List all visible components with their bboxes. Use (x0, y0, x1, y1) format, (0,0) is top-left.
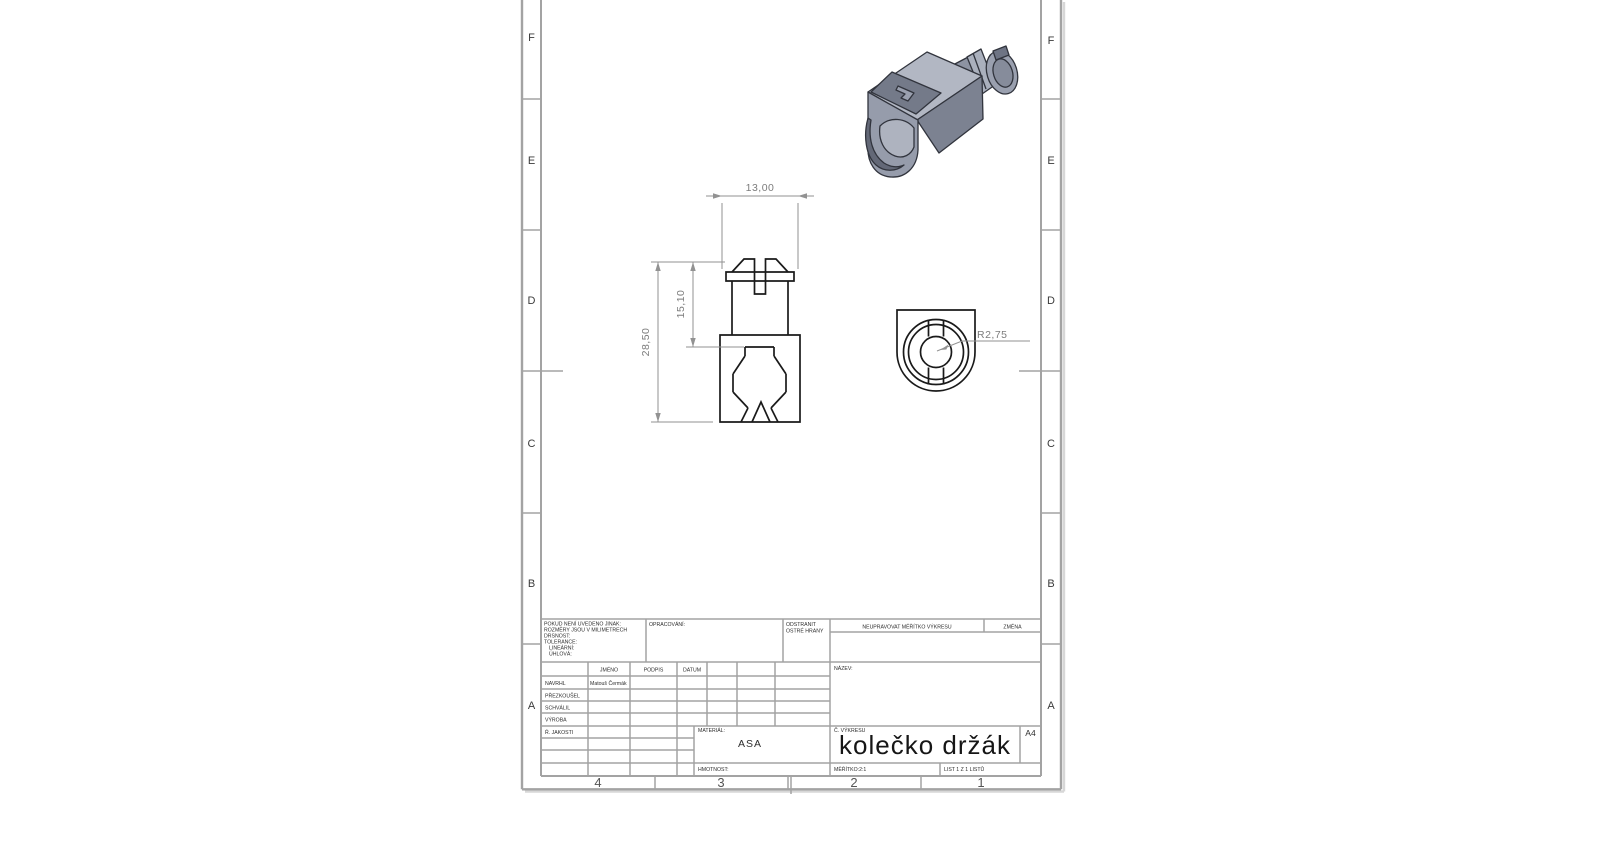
inner-ring-circle (909, 325, 964, 380)
zone-letter: F (1048, 35, 1055, 47)
front-view-prongs-slot (732, 259, 788, 294)
deburr-note: OSTRÉ HRANY (786, 628, 824, 635)
zone-number: 1 (977, 775, 984, 790)
slot-lines (929, 320, 944, 385)
title-label: NÁZEV: (834, 665, 853, 672)
front-view (720, 259, 800, 422)
col-name-header: JMÉNO (600, 667, 618, 674)
zone-letter: D (528, 295, 536, 307)
do-not-scale-note: NEUPRAVOVAT MĚŘÍTKO VÝKRESU (862, 623, 952, 631)
bore-circle (921, 337, 952, 368)
material-label: MATERIÁL: (698, 727, 725, 734)
front-view-cylinder-sides (732, 281, 788, 335)
dim-height-total-text: 28,50 (640, 328, 652, 357)
front-view-snap-cavity (733, 347, 786, 422)
scale-text: MĚŘÍTKO:2:1 (834, 765, 866, 773)
paper-size: A4 (1025, 728, 1036, 738)
dim-width-text: 13,00 (746, 182, 775, 194)
revision-label: ZMĚNA (1003, 623, 1022, 631)
material-value: ASA (738, 738, 762, 750)
outer-ring-circle (904, 320, 969, 385)
drawing-page: F E D C B A F E D C B A 4 3 2 1 13,00 28… (0, 0, 1600, 841)
zone-letter: E (1047, 155, 1054, 167)
drawing-sheet-svg: F E D C B A F E D C B A 4 3 2 1 13,00 28… (0, 0, 1600, 841)
dim-height-total-lines (651, 262, 725, 422)
zone-letter: F (528, 32, 535, 44)
deburr-note: ODSTRANIT (786, 622, 817, 628)
row-quality-label: Ř. JAKOSTI (545, 728, 573, 736)
section-view: R2,75 (897, 310, 1030, 391)
drawn-by-name: Matouš Čermák (590, 680, 627, 687)
col-date-header: DATUM (683, 668, 701, 674)
front-view-block-outline (720, 335, 800, 422)
zone-letter: B (528, 578, 535, 590)
sheet-count-text: LIST 1 Z 1 LISTŮ (944, 766, 985, 773)
general-note-line: ROZMĚRY JSOU V MILIMETRECH (544, 626, 627, 634)
weight-label: HMOTNOST: (698, 767, 729, 773)
dim-width-lines (706, 196, 814, 269)
zone-letter: C (528, 438, 536, 450)
zone-number: 2 (850, 775, 857, 790)
zone-letter: D (1047, 295, 1055, 307)
zone-letter: A (1047, 700, 1055, 712)
general-note-line: ÚHLOVÁ: (549, 651, 572, 658)
iso-view (866, 46, 1023, 177)
zone-number: 3 (717, 775, 724, 790)
dim-radius-text: R2,75 (977, 329, 1008, 341)
zone-letter: E (528, 155, 535, 167)
zone-letter: A (528, 700, 536, 712)
drawing-title: kolečko držák (839, 730, 1011, 760)
row-approved-label: SCHVÁLIL (545, 705, 570, 712)
row-production-label: VÝROBA (545, 717, 567, 724)
row-drawn-label: NAVRHL (545, 681, 566, 687)
machining-label: OPRACOVÁNÍ: (649, 621, 685, 628)
front-view-flange (726, 272, 794, 281)
dim-height-upper-text: 15,10 (675, 290, 687, 319)
zone-number: 4 (594, 775, 601, 790)
row-checked-label: PŘEZKOUŠEL (545, 692, 580, 700)
zone-letter: C (1047, 438, 1055, 450)
col-signature-header: PODPIS (644, 668, 664, 674)
general-note-line: LINEÁRNÍ: (549, 645, 574, 652)
zone-letter: B (1047, 578, 1054, 590)
general-note-line: POKUD NENÍ UVEDENO JINAK: (544, 621, 621, 628)
